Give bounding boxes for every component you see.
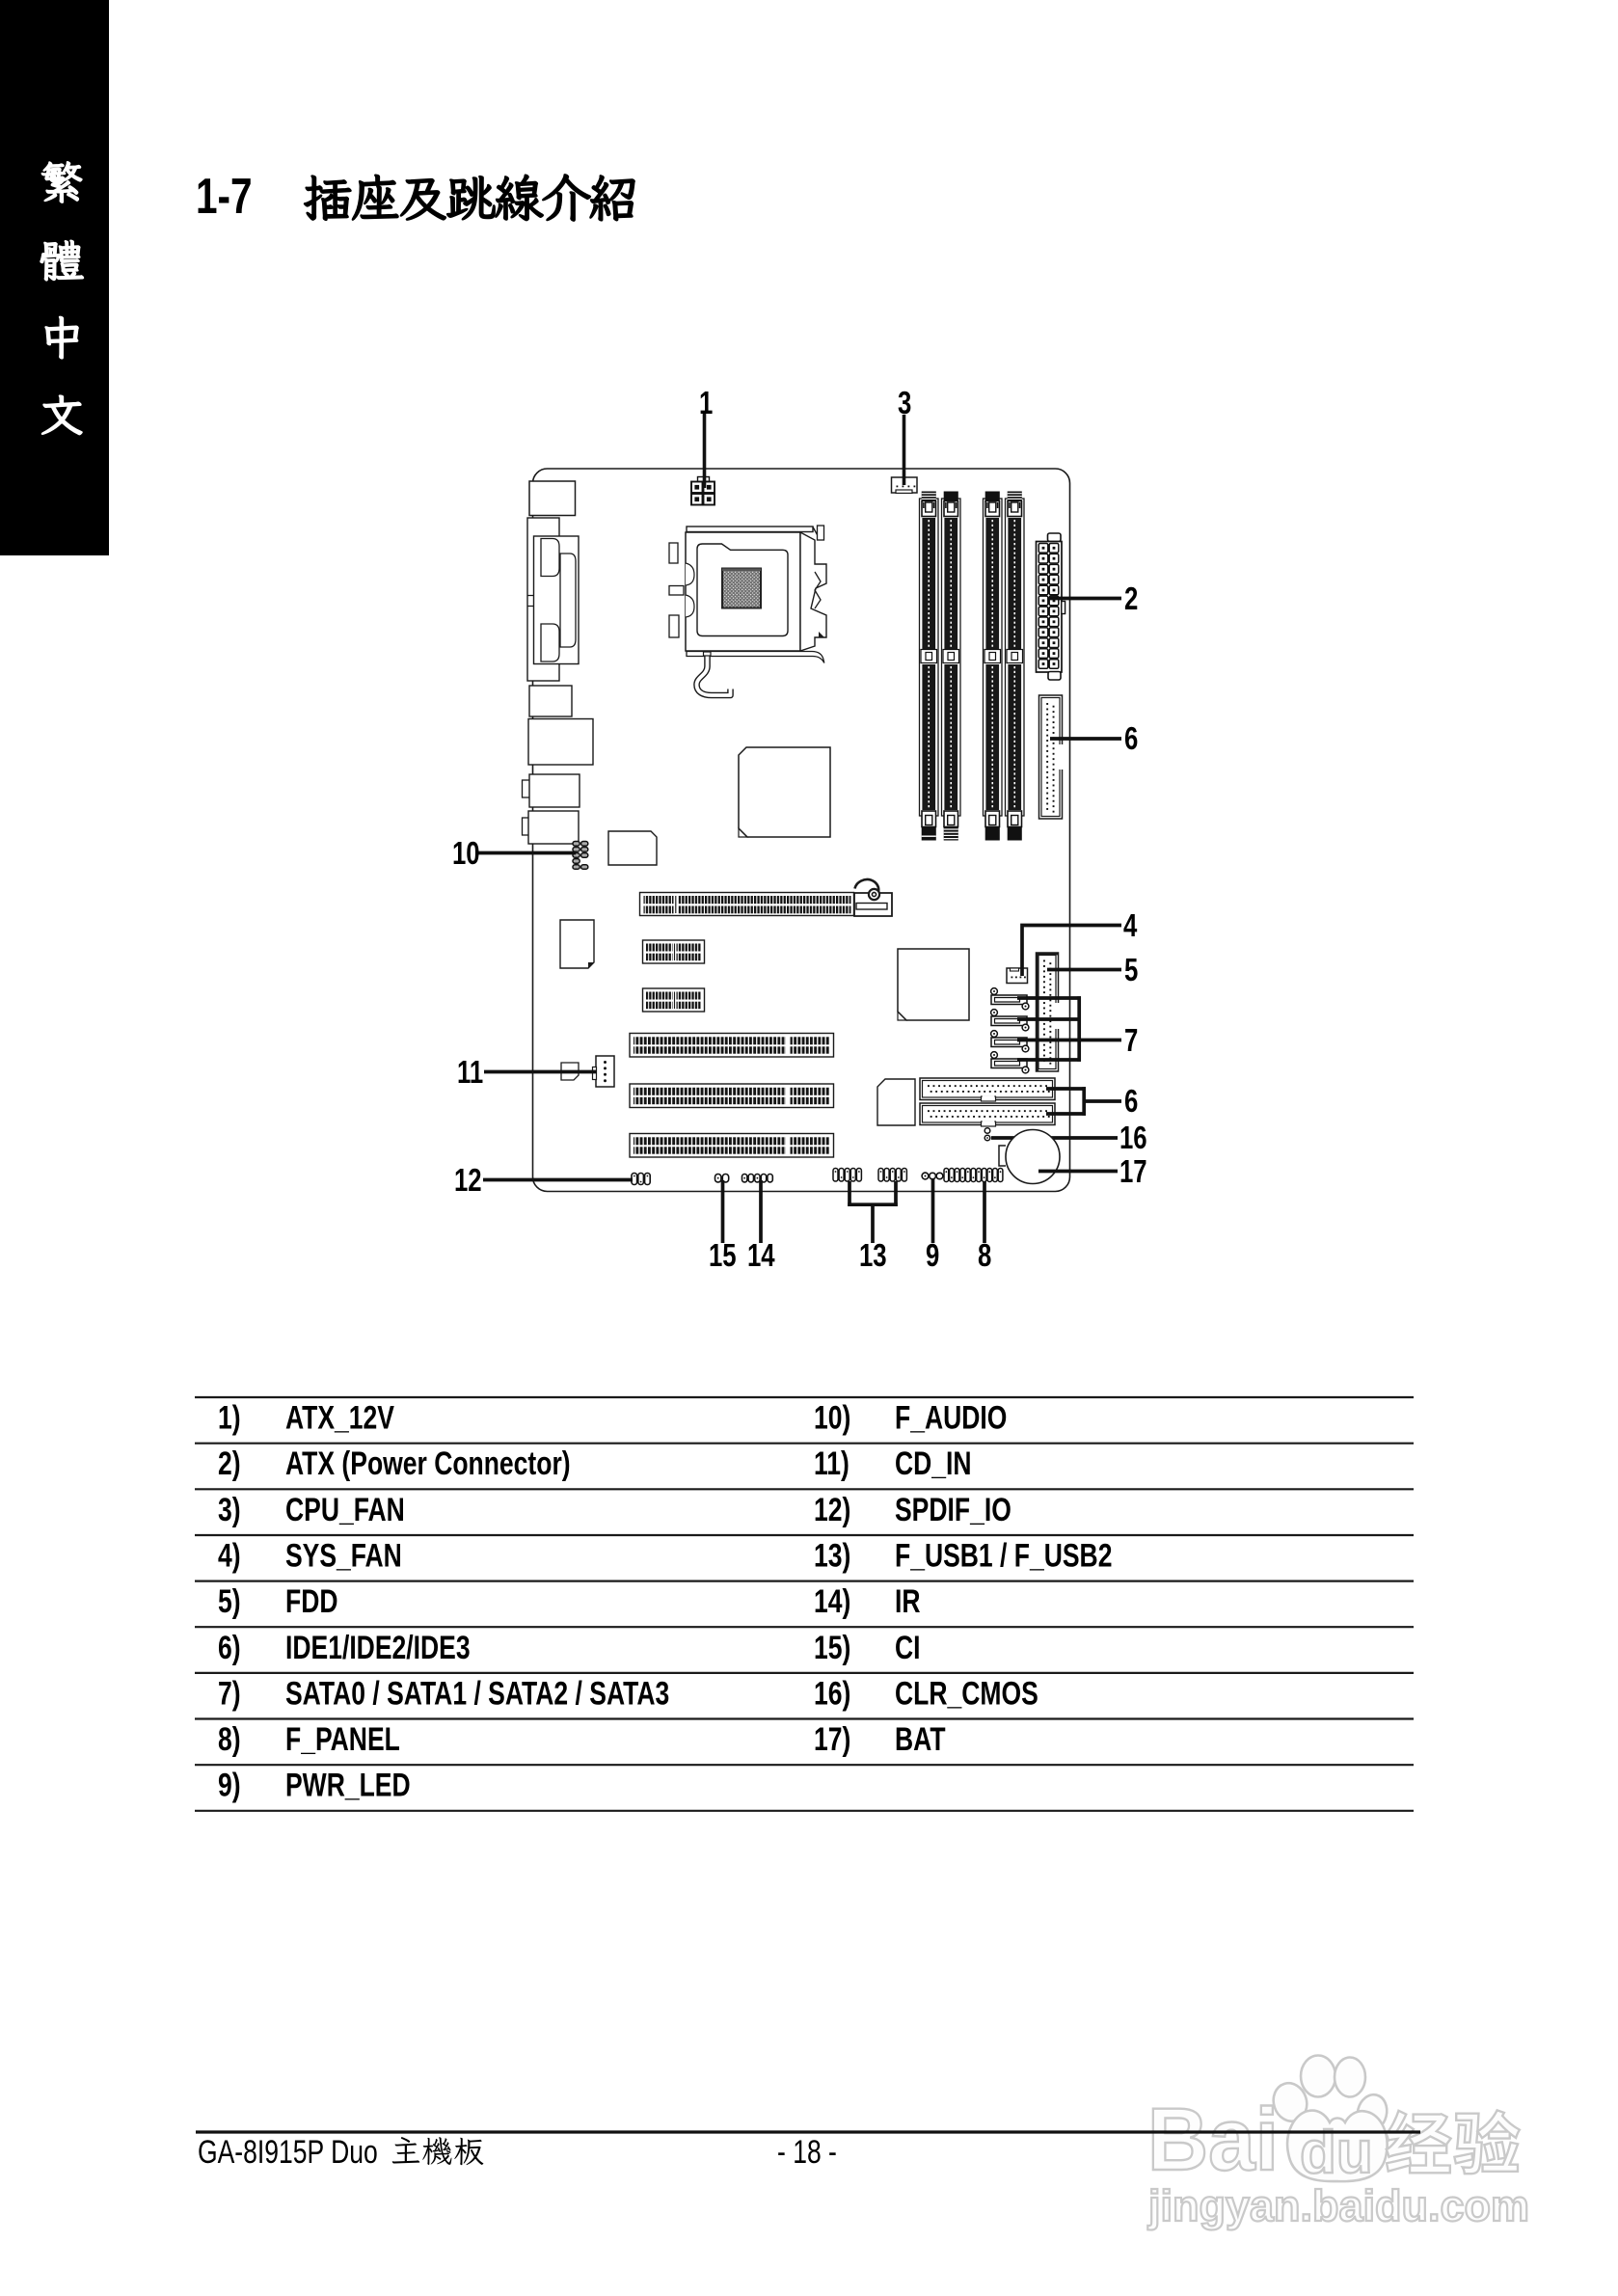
- svg-text:8): 8): [218, 1721, 241, 1758]
- svg-text:1): 1): [218, 1399, 241, 1436]
- svg-text:6: 6: [1124, 721, 1138, 757]
- svg-text:17: 17: [1119, 1154, 1147, 1190]
- svg-text:3: 3: [898, 386, 911, 421]
- svg-text:13): 13): [814, 1537, 850, 1574]
- svg-text:15): 15): [814, 1630, 850, 1666]
- svg-text:4): 4): [218, 1537, 241, 1574]
- svg-text:14): 14): [814, 1583, 850, 1620]
- svg-text:4: 4: [1123, 908, 1138, 944]
- svg-text:3): 3): [218, 1492, 241, 1528]
- svg-text:IR: IR: [895, 1583, 921, 1620]
- svg-text:5: 5: [1124, 953, 1138, 988]
- svg-text:ATX_12V: ATX_12V: [285, 1399, 395, 1436]
- svg-text:12: 12: [454, 1163, 482, 1199]
- svg-text:7): 7): [218, 1675, 241, 1712]
- svg-text:FDD: FDD: [285, 1583, 337, 1620]
- svg-text:1: 1: [699, 386, 713, 421]
- svg-text:CI: CI: [895, 1630, 921, 1666]
- svg-text:13: 13: [859, 1238, 887, 1274]
- svg-text:CLR_CMOS: CLR_CMOS: [895, 1675, 1038, 1712]
- svg-text:11: 11: [457, 1055, 483, 1091]
- svg-text:10: 10: [452, 836, 480, 872]
- svg-text:16: 16: [1119, 1121, 1147, 1156]
- svg-text:BAT: BAT: [895, 1721, 946, 1758]
- svg-text:16): 16): [814, 1675, 850, 1712]
- svg-text:ATX (Power Connector): ATX (Power Connector): [285, 1445, 571, 1482]
- svg-text:9: 9: [926, 1238, 939, 1274]
- svg-text:CPU_FAN: CPU_FAN: [285, 1492, 405, 1528]
- svg-text:F_AUDIO: F_AUDIO: [895, 1399, 1007, 1436]
- svg-text:14: 14: [747, 1238, 775, 1274]
- svg-text:Bai: Bai: [1147, 2091, 1279, 2190]
- svg-text:15: 15: [709, 1238, 737, 1274]
- svg-text:- 18 -: - 18 -: [777, 2134, 837, 2171]
- svg-text:17): 17): [814, 1721, 850, 1758]
- svg-text:11): 11): [814, 1445, 849, 1482]
- svg-text:F_USB1 / F_USB2: F_USB1 / F_USB2: [895, 1537, 1112, 1574]
- svg-text:6: 6: [1124, 1084, 1138, 1120]
- svg-text:SYS_FAN: SYS_FAN: [285, 1537, 402, 1574]
- svg-text:5): 5): [218, 1583, 241, 1620]
- svg-text:SPDIF_IO: SPDIF_IO: [895, 1492, 1011, 1528]
- svg-text:9): 9): [218, 1768, 241, 1804]
- svg-text:7: 7: [1124, 1023, 1138, 1059]
- svg-text:12): 12): [814, 1492, 850, 1528]
- svg-text:SATA0 / SATA1 / SATA2 / SATA3: SATA0 / SATA1 / SATA2 / SATA3: [285, 1675, 669, 1712]
- svg-text:6): 6): [218, 1630, 241, 1666]
- svg-text:8: 8: [978, 1238, 991, 1274]
- svg-text:1-7: 1-7: [196, 168, 253, 224]
- svg-text:du: du: [1300, 2120, 1373, 2186]
- svg-text:F_PANEL: F_PANEL: [285, 1721, 400, 1758]
- svg-text:IDE1/IDE2/IDE3: IDE1/IDE2/IDE3: [285, 1630, 471, 1666]
- svg-text:2): 2): [218, 1445, 241, 1482]
- svg-text:2: 2: [1124, 581, 1138, 617]
- svg-text:10): 10): [814, 1399, 850, 1436]
- svg-text:GA-8I915P Duo: GA-8I915P Duo: [198, 2134, 378, 2171]
- svg-text:CD_IN: CD_IN: [895, 1445, 972, 1482]
- svg-text:jingyan.baidu.com: jingyan.baidu.com: [1147, 2181, 1529, 2230]
- svg-text:PWR_LED: PWR_LED: [285, 1768, 411, 1804]
